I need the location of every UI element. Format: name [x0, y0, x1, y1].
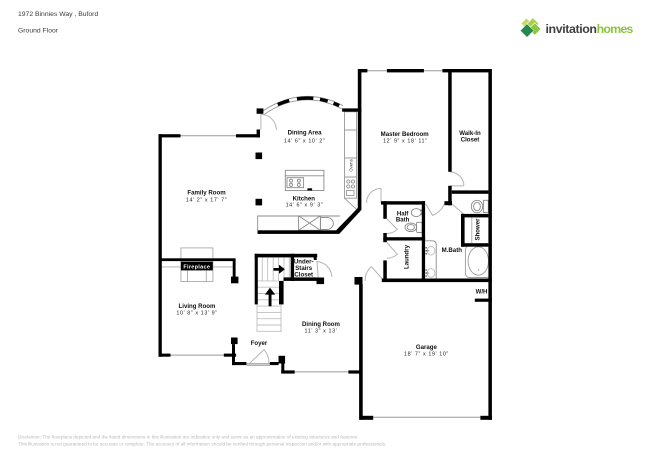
svg-text:10’ 8” x 13’ 9”: 10’ 8” x 13’ 9”: [176, 311, 217, 317]
svg-text:Closet: Closet: [294, 272, 313, 279]
svg-text:Fireplace: Fireplace: [183, 264, 210, 270]
svg-text:Laundry: Laundry: [404, 244, 411, 269]
svg-text:11’ 3” x 13’: 11’ 3” x 13’: [305, 328, 338, 334]
svg-text:18’ 7” x 19’ 10”: 18’ 7” x 19’ 10”: [404, 351, 449, 357]
svg-text:Shower: Shower: [474, 218, 481, 241]
svg-text:Living Room: Living Room: [179, 303, 216, 310]
svg-text:Ground Floor: Ground Floor: [18, 28, 59, 35]
svg-text:This illustration is not guara: This illustration is not guaranteed to b…: [18, 442, 386, 447]
svg-text:Bath: Bath: [396, 217, 410, 224]
svg-text:W/H: W/H: [476, 288, 488, 295]
svg-text:Foyer: Foyer: [251, 340, 268, 347]
svg-text:Disclaimer: The floorplans dep: Disclaimer: The floorplans depicted and …: [18, 434, 358, 439]
svg-text:Garage: Garage: [416, 344, 438, 351]
svg-text:Dining Area: Dining Area: [288, 129, 323, 136]
svg-text:Dining Room: Dining Room: [302, 321, 340, 328]
svg-text:Family Room: Family Room: [187, 190, 226, 197]
svg-text:12’ 9” x 18’ 11”: 12’ 9” x 18’ 11”: [383, 139, 427, 145]
svg-text:14’ 6” x 10’ 2”: 14’ 6” x 10’ 2”: [284, 139, 325, 145]
svg-text:Ovens: Ovens: [348, 159, 353, 171]
svg-text:M.Bath: M.Bath: [442, 247, 463, 254]
svg-text:14’ 2” x 17’ 7”: 14’ 2” x 17’ 7”: [186, 197, 227, 203]
svg-text:14’ 6” x 9’ 3”: 14’ 6” x 9’ 3”: [286, 202, 324, 208]
svg-text:invitationhomes: invitationhomes: [546, 22, 634, 36]
svg-text:Closet: Closet: [461, 137, 480, 144]
svg-text:1972 Binnies Way , Buford: 1972 Binnies Way , Buford: [18, 11, 98, 18]
svg-text:Master Bedroom: Master Bedroom: [381, 131, 430, 138]
